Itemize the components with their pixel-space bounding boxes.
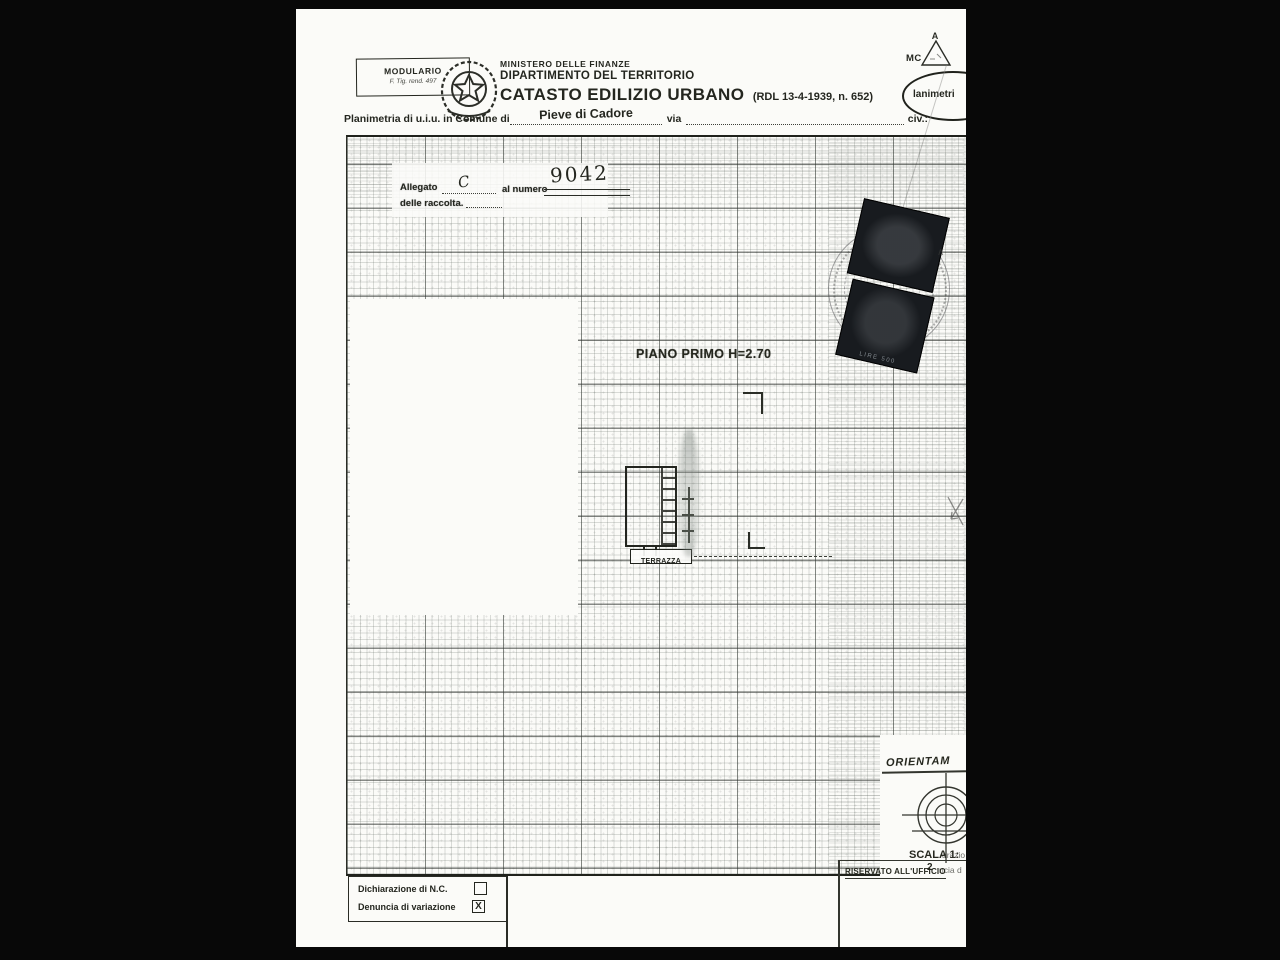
document-title: CATASTO EDILIZIO URBANO (500, 85, 744, 104)
triangle-mark-icon: A (918, 29, 954, 69)
declaration-checkbox-empty (474, 882, 487, 895)
declaration-row2-label: Denuncia di variazione (358, 902, 456, 912)
raccolta-label: delle raccolta. (400, 198, 463, 209)
terrace-label: TERRAZZA (641, 558, 681, 565)
reserved-office-box: RISERVATO ALL'UFFICIO (838, 860, 966, 879)
allegato-label: Allegato (400, 182, 437, 193)
ministry-line: MINISTERO DELLE FINANZE (500, 59, 630, 69)
declaration-row1-label: Dichiarazione di N.C. (358, 884, 448, 894)
plan-stair-ladder (661, 468, 675, 545)
raccolta-line (466, 195, 502, 208)
declaration-vline (506, 876, 508, 947)
planimetria-form-line: Planimetria di u.i.u. in Comune di Pieve… (344, 110, 928, 125)
terrace-dash-line (694, 556, 832, 557)
revenue-stamp-bottom: LIRE 500 (835, 279, 934, 374)
corner-bracket-top (743, 392, 763, 414)
allegato-number-underline (544, 189, 630, 196)
caret-mark: ∧ (937, 247, 944, 258)
arrow-mark-icon (944, 493, 966, 537)
document-title-ref: (RDL 13-4-1939, n. 652) (753, 91, 873, 103)
via-label: via (667, 113, 682, 125)
comune-field: Pieve di Cadore (510, 110, 662, 125)
scanned-document-page: MODULARIO F. Tig. rend. 497 MINISTERO DE… (296, 9, 966, 947)
oval-text: lanimetri (913, 89, 955, 100)
allegato-number: 9042 (549, 160, 609, 187)
bleed-fragment-top: arazio (942, 850, 965, 860)
erased-region (350, 299, 578, 615)
corner-bracket-bottom (748, 532, 765, 549)
declaration-checkbox-checked: X (472, 900, 485, 913)
document-title-row: CATASTO EDILIZIO URBANO (RDL 13-4-1939, … (500, 85, 873, 105)
triangle-letter: A (932, 31, 939, 41)
orientation-label: ORIENTAM (886, 755, 951, 769)
al-numero-label: al numero (502, 184, 547, 195)
terrace-label-box: TERRAZZA (630, 549, 692, 564)
department-line: DIPARTIMENTO DEL TERRITORIO (500, 70, 694, 82)
mc-label: MC (906, 53, 922, 64)
scan-smudge (679, 429, 699, 557)
floor-label: PIANO PRIMO H=2.70 (636, 347, 771, 361)
form-line-prefix: Planimetria di u.i.u. in Comune di (344, 113, 510, 125)
via-field (686, 110, 903, 125)
reserved-office-label: RISERVATO ALL'UFFICIO (845, 867, 946, 879)
comune-value: Pieve di Cadore (516, 105, 656, 123)
